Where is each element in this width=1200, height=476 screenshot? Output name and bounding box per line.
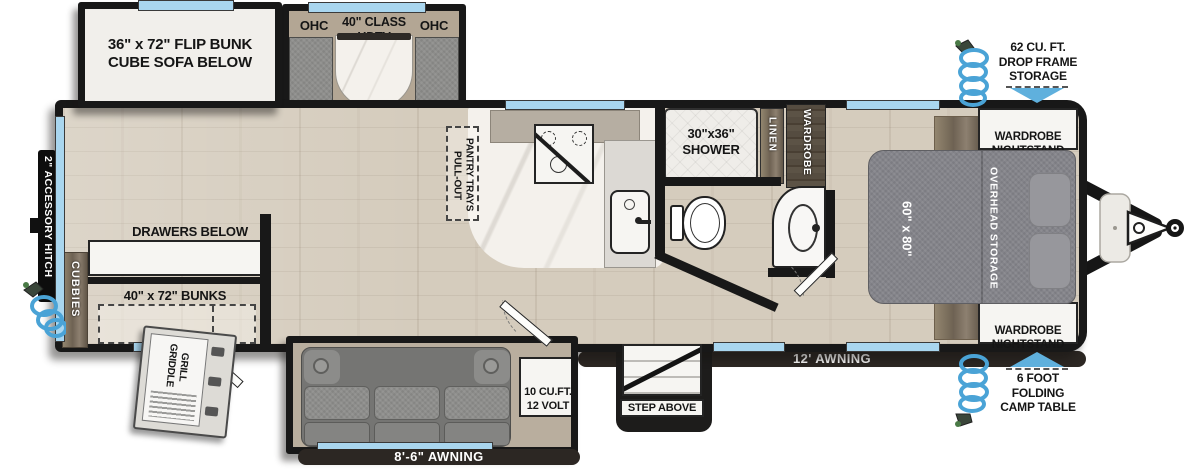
sofa-armrest [474, 350, 510, 384]
sofa-cushion [374, 386, 440, 420]
step-above-plate: STEP ABOVE [620, 399, 704, 417]
bedroom-window-bottom [846, 342, 940, 352]
main-awning-label: 12' AWNING [793, 351, 871, 366]
entry-step [622, 344, 702, 396]
camp-table-label: 6 FOOT FOLDING CAMP TABLE [992, 371, 1084, 415]
griddle-knob [205, 406, 219, 416]
faucet-icon [635, 217, 642, 224]
refrigerator-label: 10 CU.FT. 12 VOLT [524, 386, 572, 411]
ohc-right-label: OHC [411, 18, 457, 34]
griddle-grate [148, 390, 196, 421]
cubbies-label: CUBBIES [69, 261, 81, 318]
sofa-cushion [304, 386, 370, 420]
step-above-label: STEP ABOVE [628, 402, 696, 414]
range-stove [534, 124, 594, 184]
flip-bunk-slideout: 36" x 72" FLIP BUNK CUBE SOFA BELOW [78, 2, 282, 108]
camp-table-arrow-dash [1006, 368, 1068, 370]
bath-wall-under-shower [655, 177, 781, 186]
griddle-knob [208, 376, 222, 386]
wardrobe-label: WARDROBE [800, 109, 812, 175]
sofa-armrest [304, 350, 340, 384]
nightstand-top: WARDROBE NIGHTSTAND [978, 108, 1078, 150]
spray-port-coil-icon [20, 276, 66, 338]
burner-icon [572, 131, 587, 146]
entertainment-window [308, 2, 426, 13]
ohc-left-label: OHC [291, 18, 337, 34]
griddle-panel: GRIDDLE GRILL [142, 333, 209, 427]
bunk-upper [88, 240, 262, 276]
overhead-storage-label: OVERHEAD STORAGE [987, 165, 999, 291]
bedroom-window-top [846, 100, 940, 110]
rear-awning-label: 8'-6" AWNING [394, 449, 483, 464]
ohc-cabinet-right [415, 37, 459, 108]
tv-alcove [335, 35, 413, 108]
pillow [1029, 233, 1071, 289]
nightstand-bottom: WARDROBE NIGHTSTAND [978, 302, 1078, 344]
toilet-icon [670, 196, 728, 250]
griddle-label: GRIDDLE GRILL [162, 339, 192, 393]
faucet-icon [812, 224, 820, 232]
step-diagonal [622, 344, 702, 392]
pantry-dashed: PULL-OUT PANTRY TRAYS [446, 126, 479, 221]
drawers-below-label: DRAWERS BELOW [110, 224, 270, 240]
linen-label: LINEN [767, 117, 778, 152]
nightstand-bottom-label: WARDROBE NIGHTSTAND [992, 325, 1065, 351]
sofa-slideout: 10 CU.FT. 12 VOLT [286, 336, 578, 454]
shower-label: 30"x36" SHOWER [666, 126, 756, 158]
linen-cabinet: LINEN [760, 108, 784, 184]
sofa [301, 347, 511, 447]
griddle-grill: GRIDDLE GRILL [133, 325, 237, 438]
drop-frame-storage-label: 62 CU. FT. DROP FRAME STORAGE [992, 40, 1084, 84]
hall-window-bottom [713, 342, 785, 352]
drain-icon [624, 199, 635, 210]
bunks-size-label: 40" x 72" BUNKS [95, 288, 255, 304]
bed: 60" x 80" OVERHEAD STORAGE [868, 150, 1076, 304]
tv-icon [337, 33, 411, 40]
ohc-cabinet-left [289, 37, 333, 108]
griddle-knob [211, 347, 225, 357]
spray-port-coil-icon [950, 36, 994, 108]
bunk-partition-wall [260, 214, 271, 350]
entertainment-slideout: OHC 40" CLASS HDTV OHC [282, 4, 466, 108]
trailer-hitch [1078, 172, 1188, 284]
storage-arrow-dash [1006, 86, 1068, 88]
floorplan-canvas: 8'-6" AWNING 12' AWNING STEP ABOVE 36" x… [0, 0, 1200, 476]
accessory-hitch-label: 2" ACCESSORY HITCH [41, 156, 53, 277]
hitch-receiver [30, 218, 40, 233]
wardrobe-cabinet: WARDROBE [786, 104, 826, 188]
flip-bunk-label: 36" x 72" FLIP BUNK CUBE SOFA BELOW [85, 36, 275, 73]
bath-vanity [772, 186, 826, 268]
sofa-cushion [444, 386, 510, 420]
kitchen-window [505, 100, 625, 110]
bed-size-label: 60" x 80" [899, 173, 913, 285]
bunk-edge-bar [88, 277, 262, 284]
bed-seam [981, 151, 983, 303]
spray-port-coil-icon [952, 352, 996, 428]
pantry-label: PULL-OUT PANTRY TRAYS [450, 130, 474, 220]
rear-awning-bar: 8'-6" AWNING [298, 449, 580, 465]
shower: 30"x36" SHOWER [664, 108, 758, 182]
kitchen-sink [610, 190, 650, 254]
refrigerator: 10 CU.FT. 12 VOLT [519, 357, 577, 417]
flip-bunk-window [138, 0, 234, 11]
pillow [1029, 173, 1071, 227]
